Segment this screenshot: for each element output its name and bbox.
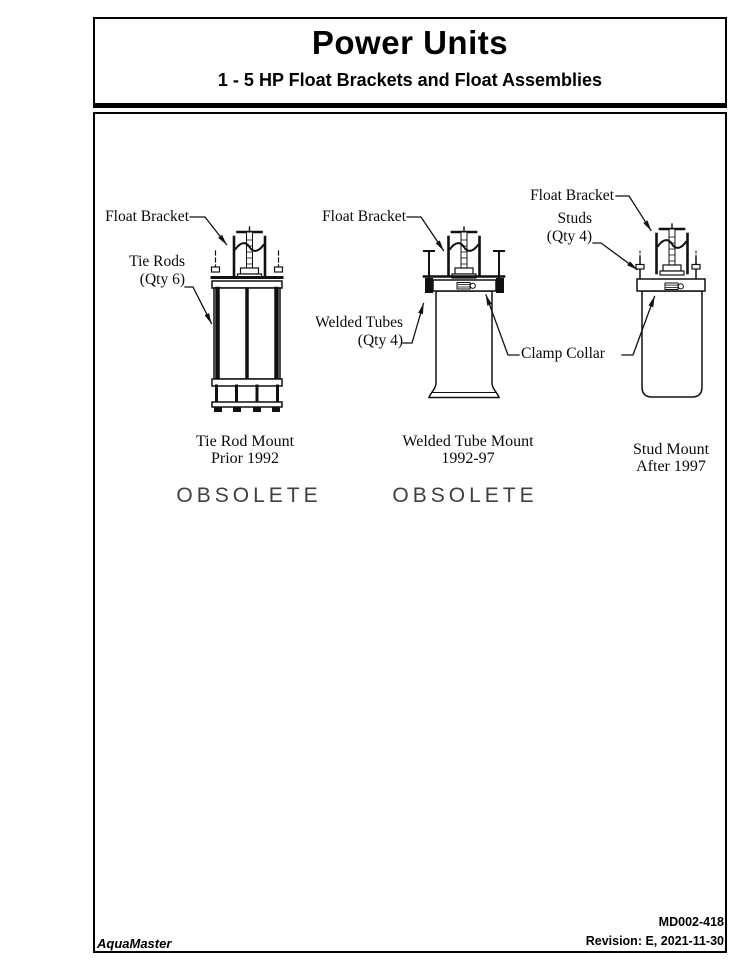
caption-tie-rod-mount: Tie Rod Mount Prior 1992 [196, 433, 294, 467]
caption-tie-rod-mount-line1: Tie Rod Mount [196, 433, 294, 450]
caption-tie-rod-mount-line2: Prior 1992 [196, 450, 294, 467]
caption-welded-tube-mount-line2: 1992-97 [402, 450, 533, 467]
obsolete-stamp-2: OBSOLETE [392, 484, 537, 508]
caption-welded-tube-mount-line1: Welded Tube Mount [402, 433, 533, 450]
doc-number: MD002-418 [659, 915, 724, 929]
document-page: Power Units 1 - 5 HP Float Brackets and … [0, 0, 754, 971]
callout-tie-rods: Tie Rods (Qty 6) [129, 253, 185, 289]
callout-welded-tubes: Welded Tubes (Qty 4) [315, 314, 403, 350]
callout-float-bracket-2: Float Bracket [322, 208, 406, 226]
caption-welded-tube-mount: Welded Tube Mount 1992-97 [402, 433, 533, 467]
callout-float-bracket-1: Float Bracket [105, 208, 189, 226]
callout-clamp-collar: Clamp Collar [521, 345, 605, 363]
brand-text: AquaMaster [97, 936, 171, 951]
caption-stud-mount: Stud Mount After 1997 [633, 441, 709, 475]
callout-float-bracket-3: Float Bracket [530, 187, 614, 205]
stud-mount-drawing [636, 224, 705, 397]
diagram-linework [0, 0, 754, 971]
tie-rod-mount-drawing [212, 227, 283, 412]
revision-text: Revision: E, 2021-11-30 [586, 934, 724, 948]
obsolete-stamp-1: OBSOLETE [176, 484, 321, 508]
callout-studs: Studs (Qty 4) [547, 210, 592, 246]
caption-stud-mount-line1: Stud Mount [633, 441, 709, 458]
caption-stud-mount-line2: After 1997 [633, 458, 709, 475]
